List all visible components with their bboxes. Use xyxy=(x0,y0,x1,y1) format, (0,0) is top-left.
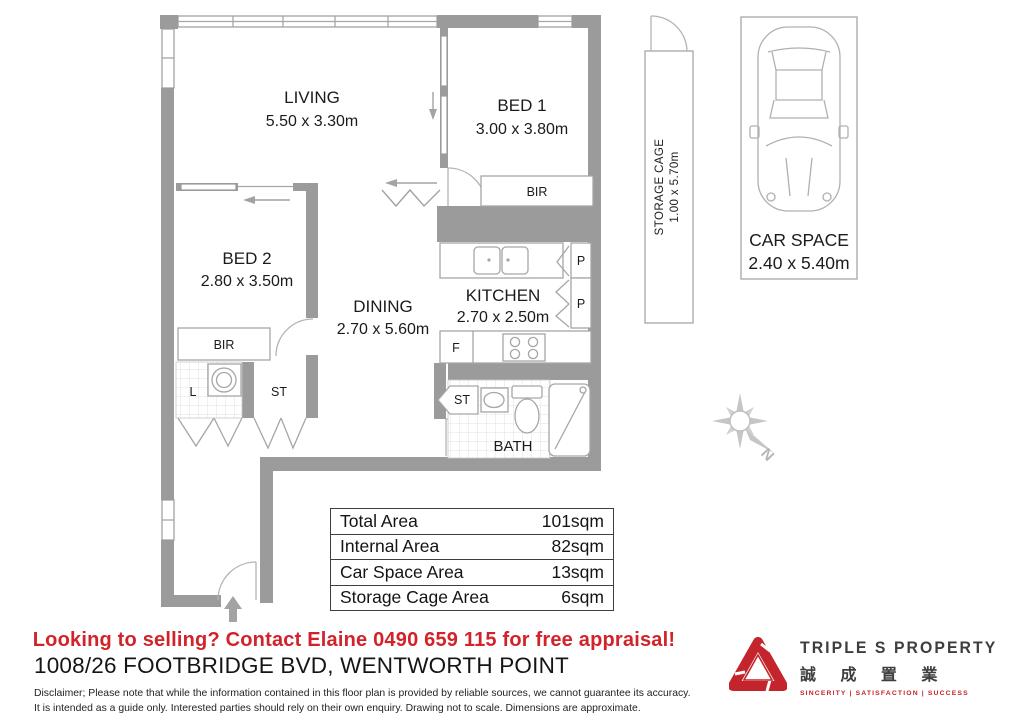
brand-text-block: TRIPLE S PROPERTY 誠 成 置 業 SINCERITY | SA… xyxy=(800,638,1012,697)
room-label-dining: DINING xyxy=(353,297,413,316)
compass: N xyxy=(712,393,777,465)
washing-machine xyxy=(208,364,241,396)
area-value: 82sqm xyxy=(551,536,604,557)
shower xyxy=(549,384,590,456)
brand-chinese: 誠 成 置 業 xyxy=(800,661,1012,685)
storage-cage-dims: 1.00 x 5.70m xyxy=(669,151,681,222)
floorplan-page: BIR BIR L ST xyxy=(0,0,1024,724)
room-dims-living: 5.50 x 3.30m xyxy=(266,113,359,130)
room-dims-kitchen: 2.70 x 2.50m xyxy=(457,309,550,326)
car-space-dims: 2.40 x 5.40m xyxy=(748,253,849,273)
entry-arrow xyxy=(224,596,242,622)
bir-bed2-label: BIR xyxy=(214,338,235,352)
basin xyxy=(481,388,508,412)
store-hall-label: ST xyxy=(271,385,287,399)
brand-title: TRIPLE S PROPERTY xyxy=(800,638,997,658)
pantry-top-label: P xyxy=(577,254,585,268)
room-label-kitchen: KITCHEN xyxy=(466,286,541,305)
compass-north-label: N xyxy=(757,445,777,465)
promo-text: Looking to selling? Contact Elaine 0490 … xyxy=(0,629,708,652)
car-space: CAR SPACE 2.40 x 5.40m xyxy=(741,17,857,279)
window-arrow-bed1 xyxy=(429,92,437,120)
table-row: Car Space Area 13sqm xyxy=(331,560,613,586)
laundry-label: L xyxy=(190,385,197,399)
area-table: Total Area 101sqm Internal Area 82sqm Ca… xyxy=(330,508,614,611)
pantry-door-2 xyxy=(556,280,569,304)
address-text: 1008/26 FOOTBRIDGE BVD, WENTWORTH POINT xyxy=(34,653,569,679)
room-label-bed2: BED 2 xyxy=(222,249,271,268)
pantry-door-3 xyxy=(556,304,569,327)
room-label-bed1: BED 1 xyxy=(497,96,546,115)
fridge-label: F xyxy=(452,341,460,355)
bath-label: BATH xyxy=(494,438,533,455)
area-label: Total Area xyxy=(340,511,418,532)
room-dims-bed2: 2.80 x 3.50m xyxy=(201,273,294,290)
room-label-living: LIVING xyxy=(284,88,340,107)
laundry-door xyxy=(178,418,214,446)
area-value: 101sqm xyxy=(542,511,604,532)
room-dims-dining: 2.70 x 5.60m xyxy=(337,321,430,338)
room-dims-bed1: 3.00 x 3.80m xyxy=(476,121,569,138)
table-row: Internal Area 82sqm xyxy=(331,535,613,561)
door-arc-entry xyxy=(218,562,256,600)
brand-tagline: SINCERITY | SATISFACTION | SUCCESS xyxy=(800,690,1012,697)
window-bed2-top xyxy=(181,184,236,190)
window-bed1-left2 xyxy=(441,96,447,154)
table-row: Storage Cage Area 6sqm xyxy=(331,586,613,611)
st-door xyxy=(254,418,281,448)
area-value: 6sqm xyxy=(561,587,604,608)
area-label: Internal Area xyxy=(340,536,439,557)
storage-cage-label: STORAGE CAGE xyxy=(654,139,666,236)
sliding-door-arrow-bed2 xyxy=(243,196,290,204)
bir-bed1-label: BIR xyxy=(527,185,548,199)
storage-cage: STORAGE CAGE 1.00 x 5.70m xyxy=(645,16,693,323)
laundry-door2 xyxy=(214,418,242,446)
area-label: Car Space Area xyxy=(340,562,464,583)
disclaimer-line-2: It is intended as a guide only. Interest… xyxy=(34,701,691,716)
brand-logo: TRIPLE S PROPERTY 誠 成 置 業 SINCERITY | SA… xyxy=(729,636,1012,698)
storage-cage-door xyxy=(651,16,687,51)
door-arc-bed1 xyxy=(448,168,486,206)
door-arc-bed2 xyxy=(276,319,313,356)
entry-zigzag-marker xyxy=(382,179,440,206)
area-value: 13sqm xyxy=(551,562,604,583)
disclaimer-line-1: Disclaimer; Please note that while the i… xyxy=(34,686,691,701)
window-bed1-left xyxy=(441,36,447,86)
disclaimer-text: Disclaimer; Please note that while the i… xyxy=(34,686,691,716)
car-space-label: CAR SPACE xyxy=(749,230,849,250)
pantry-bottom-label: P xyxy=(577,297,585,311)
table-row: Total Area 101sqm xyxy=(331,509,613,535)
st-bath-label: ST xyxy=(454,393,470,407)
cooktop xyxy=(503,334,545,361)
area-label: Storage Cage Area xyxy=(340,587,489,608)
triangle-logo-icon xyxy=(729,636,787,698)
st-door2 xyxy=(281,418,306,448)
floorplan-svg: BIR BIR L ST xyxy=(0,0,1024,724)
